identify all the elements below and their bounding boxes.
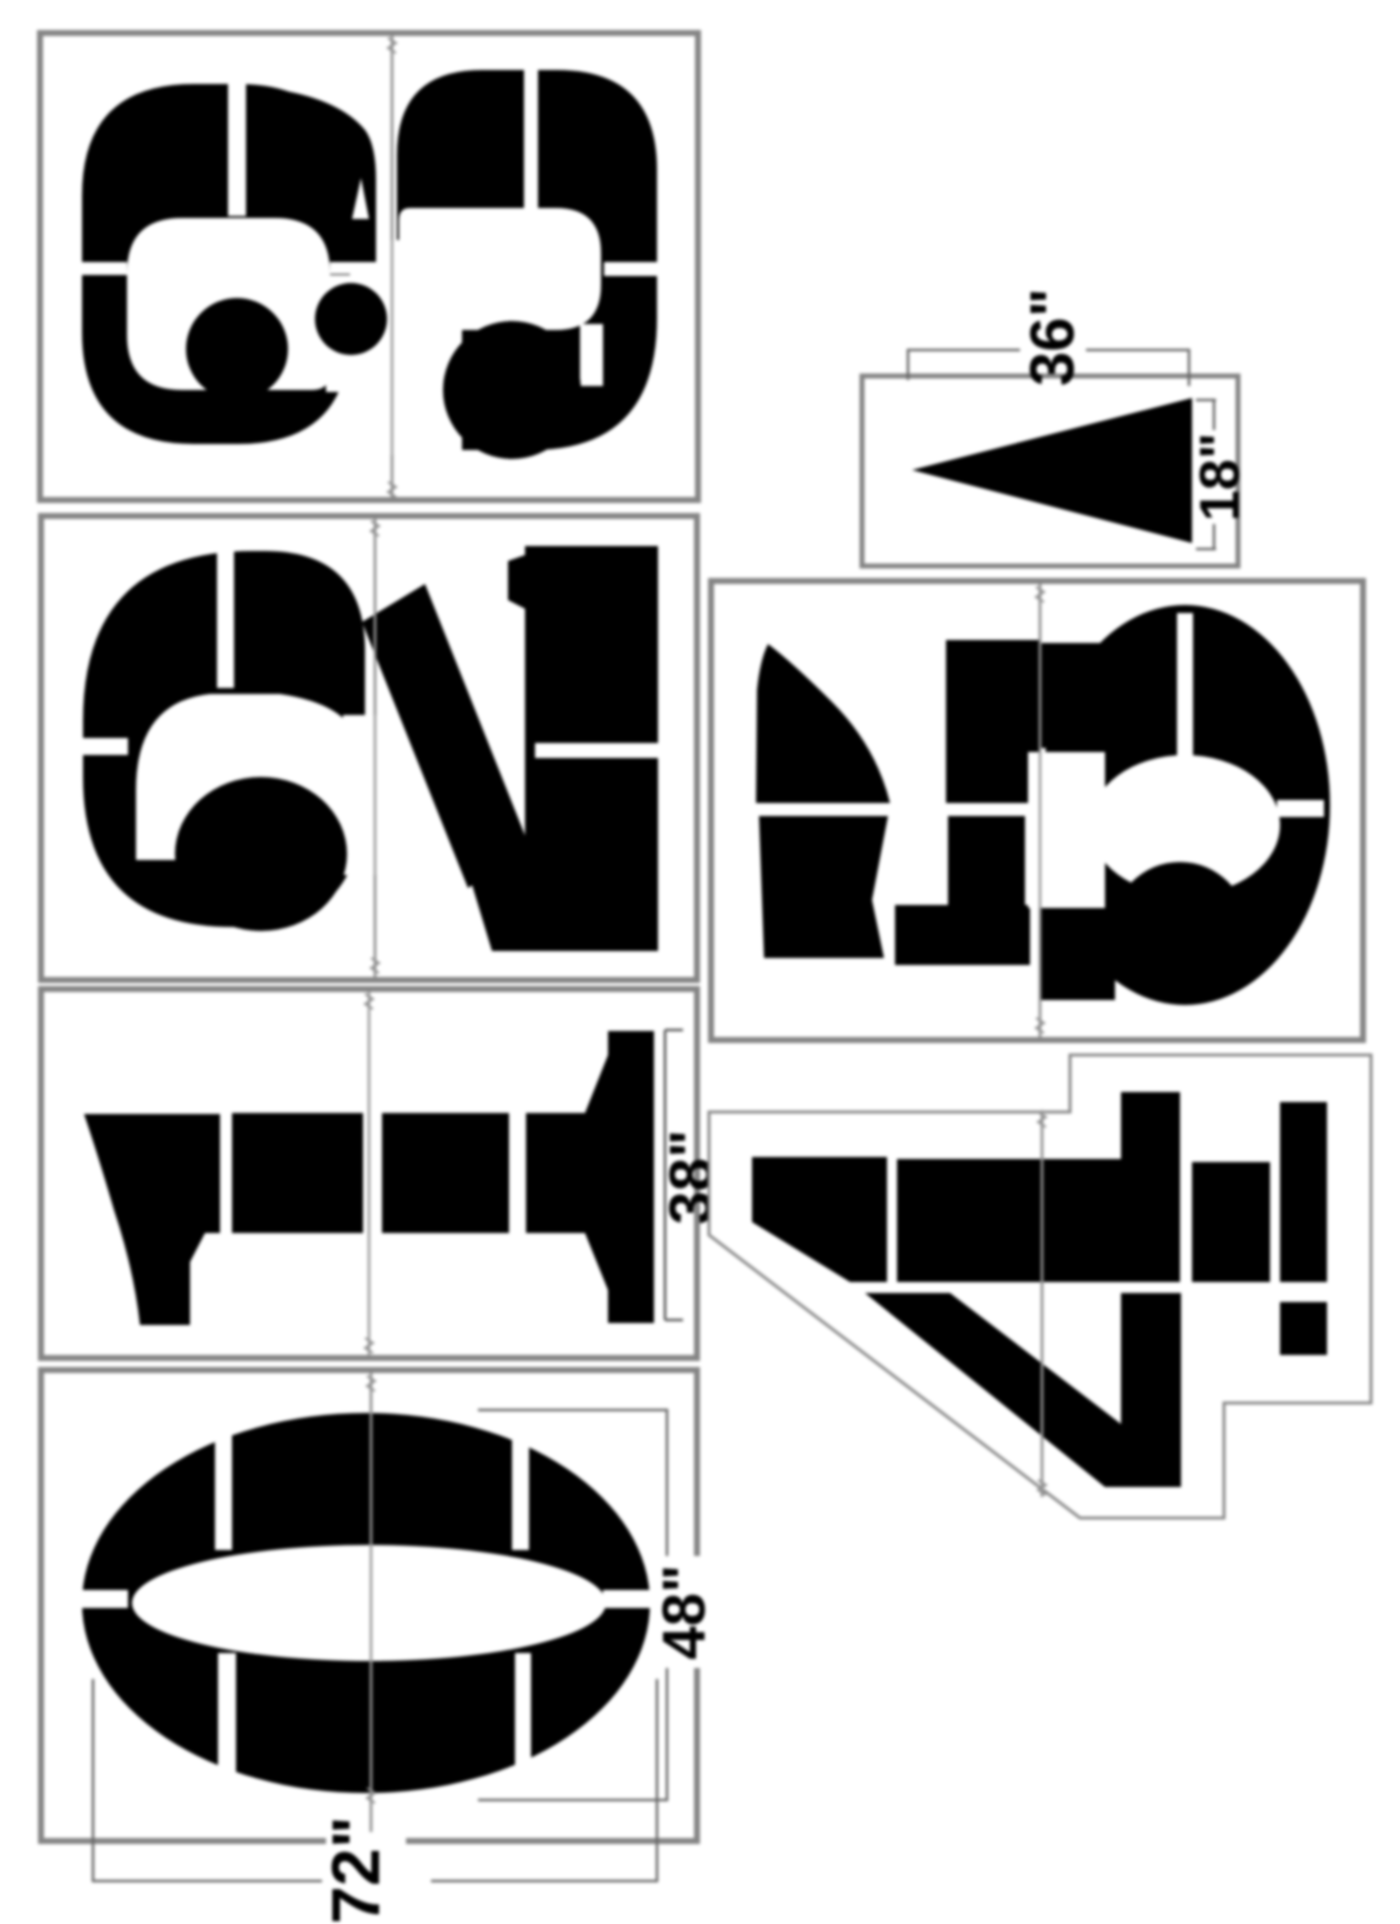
svg-text:18": 18" xyxy=(1188,433,1251,522)
svg-text:72": 72" xyxy=(318,1816,394,1924)
svg-text:48": 48" xyxy=(651,1564,718,1659)
svg-text:36": 36" xyxy=(1019,288,1088,386)
